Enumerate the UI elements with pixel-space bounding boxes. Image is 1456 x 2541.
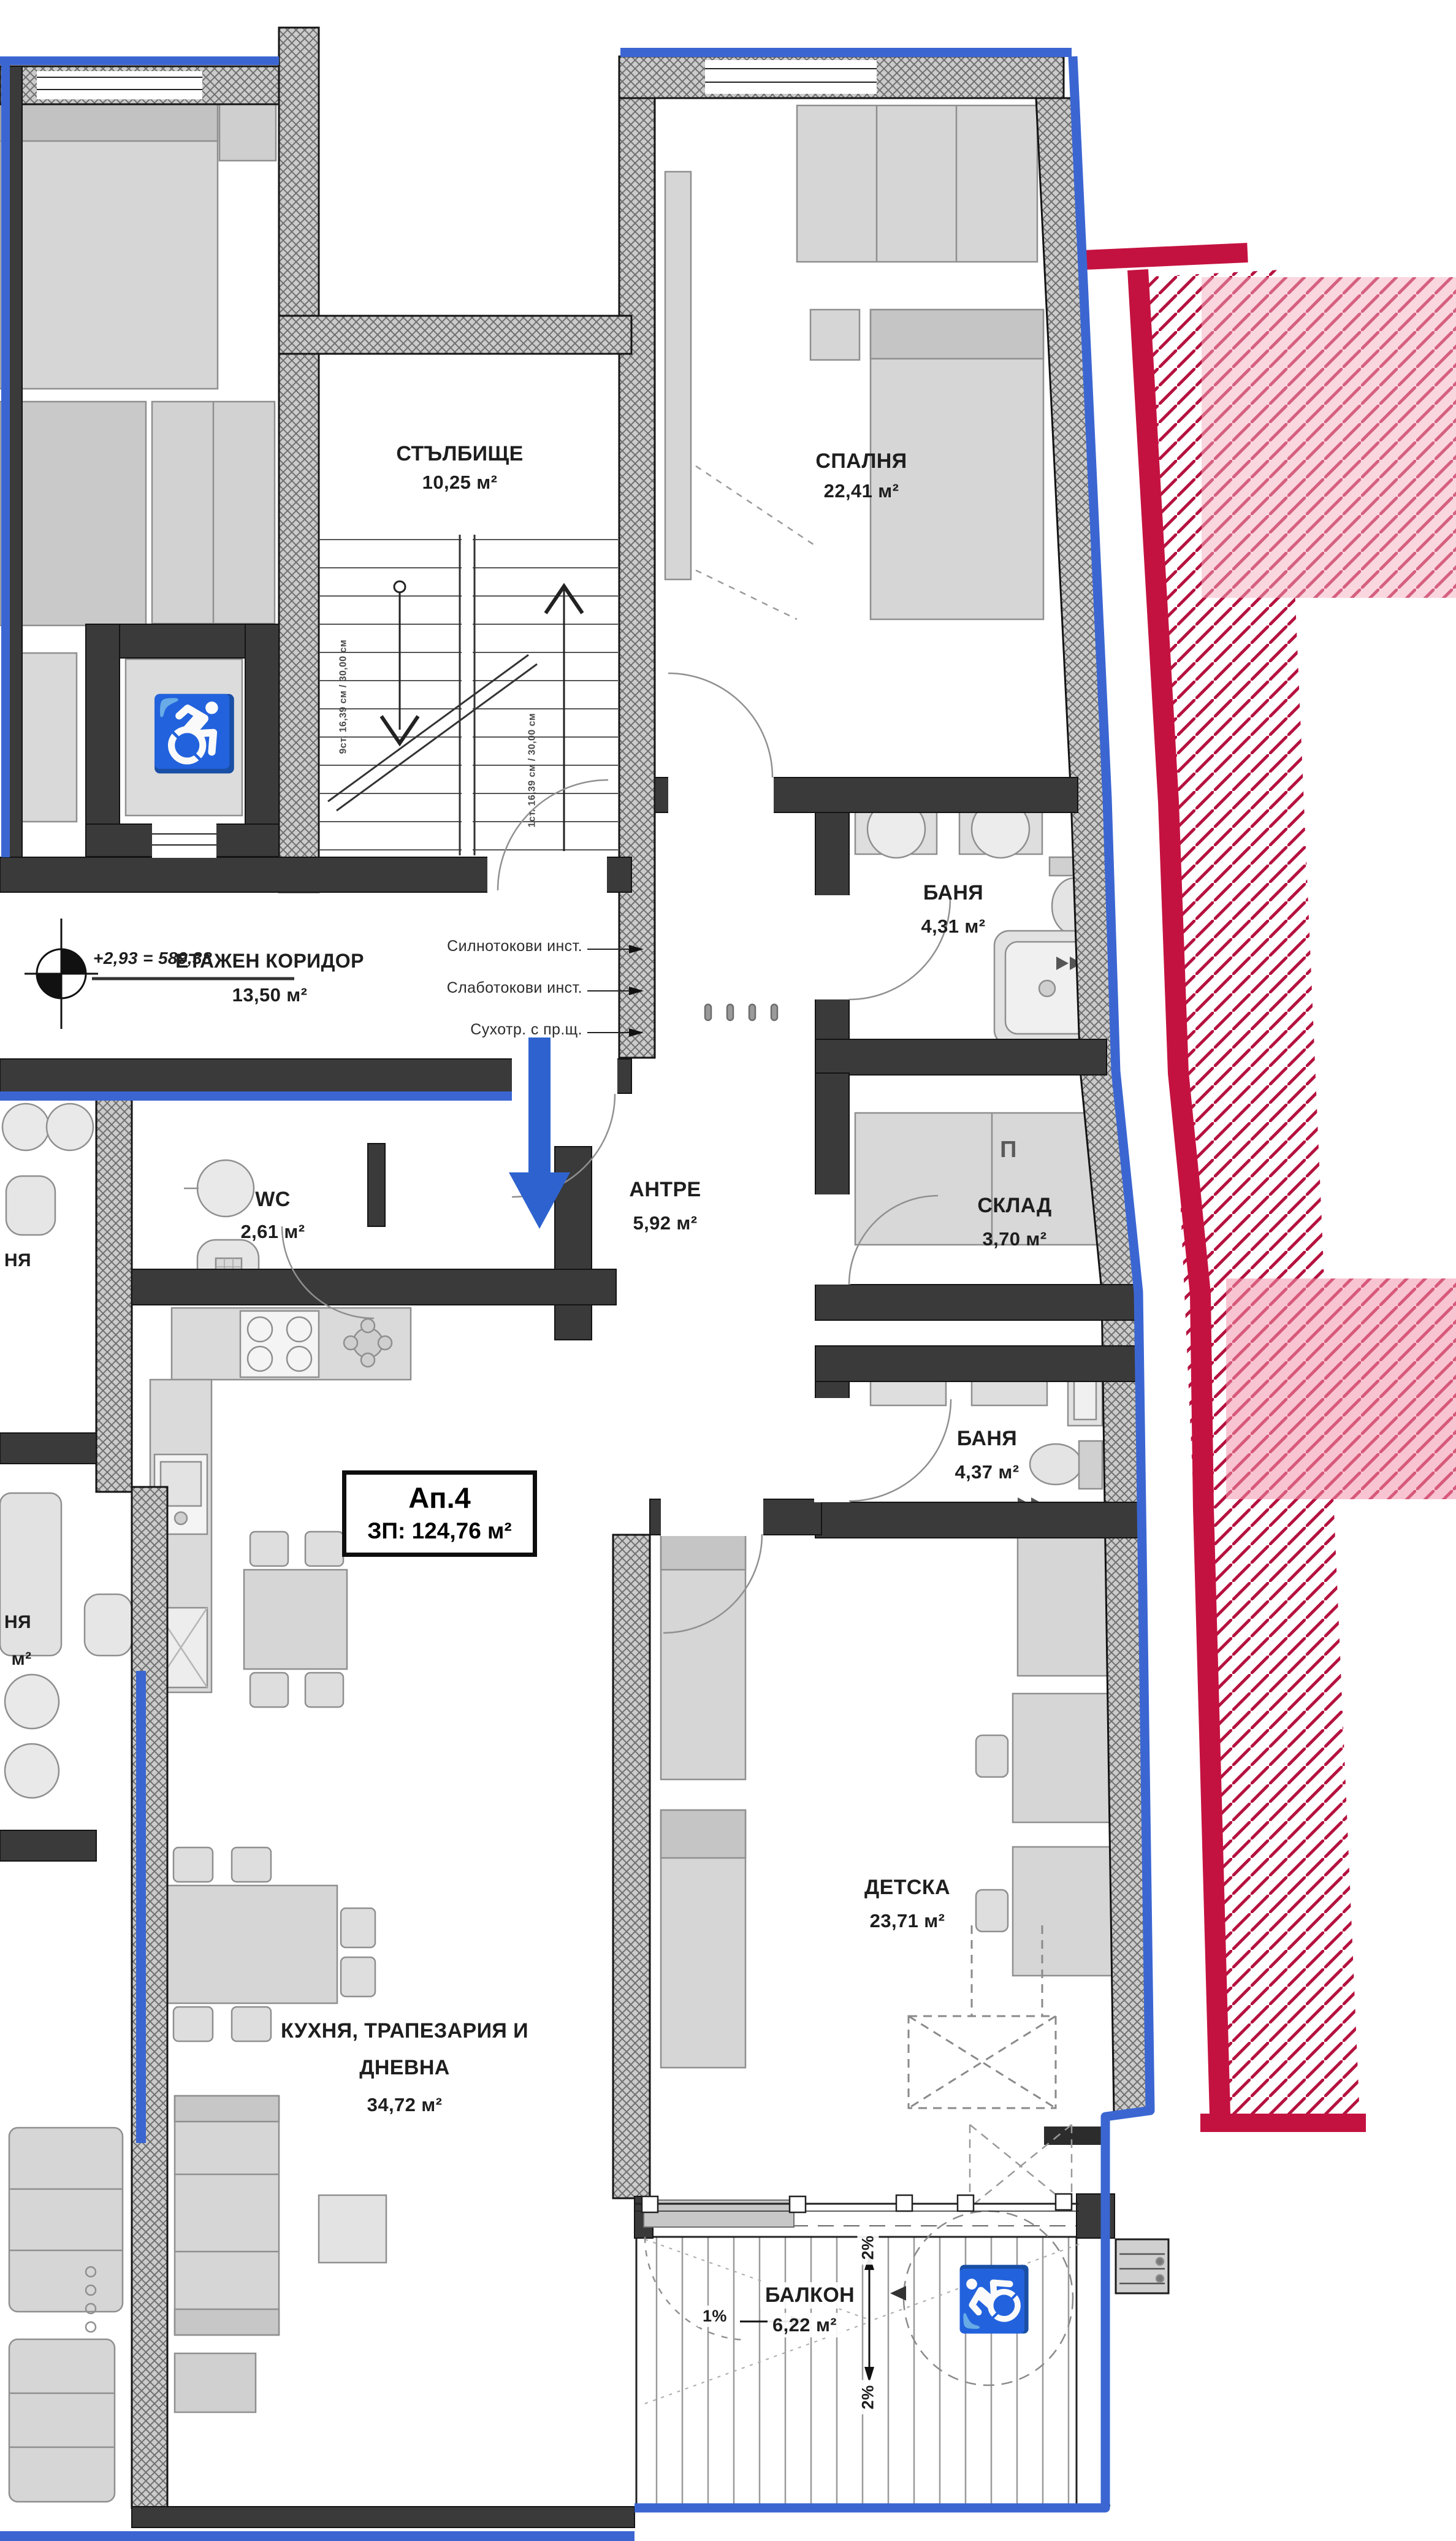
note-dry-riser: Сухотр. с пр.щ. [368,1020,582,1039]
cut-room-label-2: НЯ [0,1611,39,1634]
room-area-kitchen: 34,72 м² [251,2093,558,2117]
plan-drawing [0,0,1456,2541]
room-label-bedroom: СПАЛНЯ [769,449,953,474]
room-area-bedroom: 22,41 м² [769,480,953,503]
room-area-wc: 2,61 м² [212,1220,334,1244]
room-label-kids: ДЕТСКА [815,1875,999,1900]
washer-symbol: П [990,1136,1027,1164]
room-label-bath2: БАНЯ [895,1426,1079,1451]
room-label-kitchen-2: ДНЕВНА [251,2055,558,2081]
stair-note-right: 1ст. 16,39 см / 30,00 см [526,713,538,828]
room-label-bath1: БАНЯ [861,881,1045,906]
room-area-kids: 23,71 м² [815,1909,999,1933]
wheelchair-icon: ♿ [149,692,239,776]
stair-note-left: 9ст. 16,39 см / 30,00 см [337,640,349,754]
room-area-stairwell: 10,25 м² [368,471,552,494]
cut-room-label-1: НЯ [0,1250,39,1272]
slope-label-2pct-top: 2% [857,2231,879,2265]
wheelchair-icon-balcony: ♿ [958,2260,1031,2338]
floor-plan: СТЪЛБИЩЕ 10,25 м² СПАЛНЯ 22,41 м² БАНЯ 4… [0,0,1456,2541]
room-area-storage: 3,70 м² [923,1228,1107,1251]
apartment-info-box: Ап.4 ЗП: 124,76 м² [342,1470,537,1557]
cut-area-label: м² [0,1648,43,1671]
staircase [319,535,618,855]
room-area-balcony: 6,22 м² [768,2313,842,2337]
room-area-hall: 5,92 м² [604,1212,726,1235]
room-label-hall: АНТРЕ [604,1177,726,1202]
apartment-total-area: ЗП: 124,76 м² [346,1518,533,1544]
balcony-glazing [635,2194,1079,2227]
room-label-wc: WC [212,1187,334,1212]
slope-label-1pct: 1% [698,2306,732,2327]
apartment-id: Ап.4 [346,1481,533,1515]
room-area-bath2: 4,37 м² [895,1461,1079,1484]
level-marker-text: +2,93 = 589,38 [93,948,212,969]
level-marker-symbol [25,919,294,1029]
note-power: Силнотокови инст. [368,937,582,956]
note-low-current: Слаботокови инст. [368,979,582,998]
room-label-kitchen-1: КУХНЯ, ТРАПЕЗАРИЯ И [251,2019,558,2044]
room-label-stairwell: СТЪЛБИЩЕ [368,441,552,467]
room-label-storage: СКЛАД [923,1193,1107,1218]
slope-label-2pct-bottom: 2% [857,2380,879,2415]
pink-highlight-bottom [1226,1278,1456,1499]
room-label-balcony: БАЛКОН [760,2282,859,2309]
pink-highlight-top [1202,277,1456,598]
room-area-bath1: 4,31 м² [861,915,1045,938]
room-area-corridor: 13,50 м² [159,984,380,1007]
